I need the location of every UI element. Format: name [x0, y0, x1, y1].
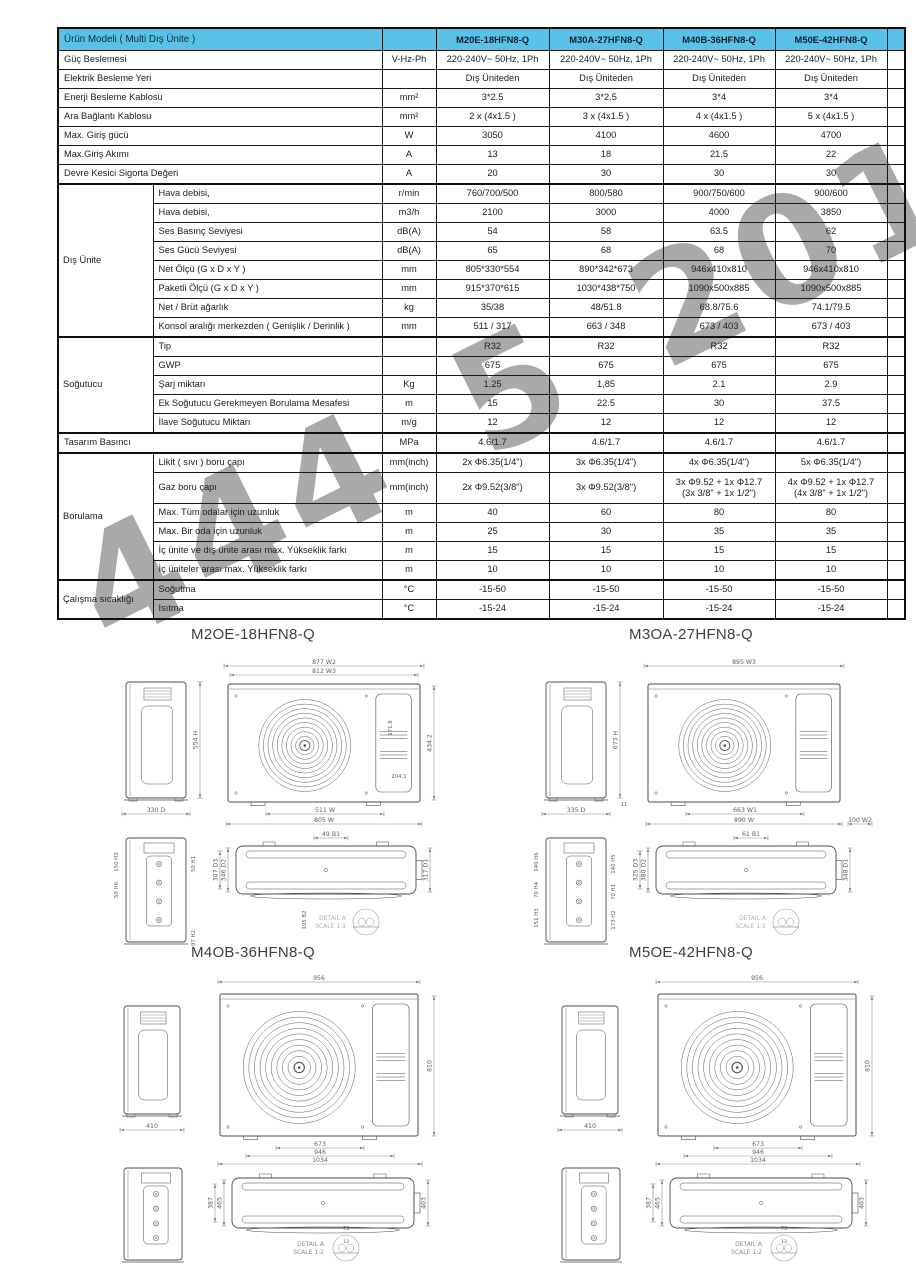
- unit-cell: [382, 70, 436, 89]
- edge-strip-cell: [887, 261, 905, 280]
- top-view: [232, 1174, 420, 1233]
- spec-cell: -15-50: [549, 580, 663, 600]
- spec-row: Ses Basınç SeviyesidB(A)545863.562: [58, 223, 905, 242]
- spec-row: Konsol aralığı merkezden ( Genişlik / De…: [58, 318, 905, 338]
- top-view: [236, 842, 422, 899]
- side-view: [122, 1006, 182, 1117]
- spec-row: Gaz boru çapımm(inch)2x Φ9.52(3/8")3x Φ9…: [58, 473, 905, 504]
- spec-cell: 675: [436, 357, 549, 376]
- row-label: İç üniteler arası max. Yükseklik farkı: [153, 561, 382, 581]
- technical-drawing: 4109568106739461034465387403DETAIL ASCAL…: [108, 964, 484, 1264]
- spec-cell: 675: [775, 357, 887, 376]
- spec-cell: 890*342*673: [549, 261, 663, 280]
- fan-grille: [679, 700, 771, 792]
- dimension-label: 1034: [312, 1157, 328, 1164]
- row-label: Likit ( sıvı ) boru çapı: [153, 453, 382, 473]
- spec-cell: 2x Φ6.35(1/4"): [436, 453, 549, 473]
- model-header: M40B-36HFN8-Q: [663, 28, 775, 51]
- detail-a-view: [771, 1235, 797, 1261]
- spec-cell: 3050: [436, 127, 549, 146]
- dimension-label: 61 B1: [742, 831, 760, 838]
- spec-cell: 18: [549, 146, 663, 165]
- spec-cell: 60: [549, 504, 663, 523]
- dimension-label: 380 D2: [641, 859, 648, 882]
- dimension-label: 70 H4: [534, 881, 540, 898]
- unit-cell: MPa: [382, 433, 436, 453]
- spec-cell: R32: [549, 337, 663, 357]
- spec-cell: 4.6/1.7: [663, 433, 775, 453]
- spec-cell: 48/51.8: [549, 299, 663, 318]
- spec-cell: 2.1: [663, 376, 775, 395]
- fan-grille: [243, 1012, 355, 1124]
- spec-row: SoğutucuTipR32R32R32R32: [58, 337, 905, 357]
- dimension-label: 325 D3: [633, 859, 640, 882]
- dimension-label: 554 H: [193, 730, 200, 749]
- row-label: Hava debisi,: [153, 184, 382, 204]
- spec-row: Paketli Ölçü (G x D x Y )mm915*370*61510…: [58, 280, 905, 299]
- row-label: Max.Giriş Akımı: [58, 146, 382, 165]
- spec-row: Elektrik Besleme YeriDış ÜnitedenDış Üni…: [58, 70, 905, 89]
- spec-cell: 58: [549, 223, 663, 242]
- row-label: Max. Bir oda için uzunluk: [153, 523, 382, 542]
- edge-strip-cell: [887, 504, 905, 523]
- spec-cell: -15-24: [549, 600, 663, 620]
- spec-cell: -15-50: [436, 580, 549, 600]
- spec-cell: R32: [436, 337, 549, 357]
- spec-cell: 675: [663, 357, 775, 376]
- group-label: Çalışma sıcaklığı: [58, 580, 153, 619]
- spec-cell: 3x Φ9.52 + 1x Φ12.7 (3x 3/8" + 1x 1/2"): [663, 473, 775, 504]
- spec-cell: 10: [549, 561, 663, 581]
- edge-strip-cell: [887, 146, 905, 165]
- group-label: Borulama: [58, 453, 153, 580]
- unit-cell: m: [382, 523, 436, 542]
- spec-row: Devre Kesici Sigorta DeğeriA20303030: [58, 165, 905, 185]
- spec-cell: 35: [775, 523, 887, 542]
- row-label: Paketli Ölçü (G x D x Y ): [153, 280, 382, 299]
- spec-cell: 13: [436, 146, 549, 165]
- spec-cell: 1.25: [436, 376, 549, 395]
- spec-cell: 3x Φ9.52(3/8"): [549, 473, 663, 504]
- technical-drawing: 673 H335 D11895 W3663 W1890 W100 W2140 H…: [528, 646, 904, 946]
- dimension-label: 100 W2: [848, 817, 872, 824]
- spec-cell: 15: [436, 542, 549, 561]
- unit-cell: W: [382, 127, 436, 146]
- row-label: Ses Basınç Seviyesi: [153, 223, 382, 242]
- dimension-label: 49 B1: [322, 831, 340, 838]
- side-view: [124, 682, 188, 801]
- spec-cell: 3*4: [663, 89, 775, 108]
- spec-cell: 35/38: [436, 299, 549, 318]
- spec-cell: R32: [775, 337, 887, 357]
- dimension-label: 11: [621, 802, 628, 808]
- unit-cell: °C: [382, 580, 436, 600]
- top-view: [656, 842, 842, 899]
- spec-cell: 65: [436, 242, 549, 261]
- edge-strip-cell: [887, 414, 905, 434]
- spec-cell: 900/600: [775, 184, 887, 204]
- spec-cell: 4x Φ6.35(1/4"): [663, 453, 775, 473]
- dimension-label: 673: [752, 1141, 764, 1148]
- edge-strip-cell: [887, 395, 905, 414]
- edge-strip-cell: [887, 376, 905, 395]
- dimension-label: 812 W3: [312, 668, 336, 675]
- spec-cell: Dış Üniteden: [663, 70, 775, 89]
- dimension-label: 673: [314, 1141, 326, 1148]
- front-view: [228, 684, 420, 806]
- dimension-label: DETAIL A: [319, 915, 347, 922]
- dimension-label: 70 H1: [611, 884, 617, 900]
- spec-cell: 21.5: [663, 146, 775, 165]
- unit-cell: m: [382, 561, 436, 581]
- row-label: Devre Kesici Sigorta Değeri: [58, 165, 382, 185]
- dimension-label: DETAIL A: [739, 915, 767, 922]
- dimension-label: 140 H6: [534, 852, 540, 872]
- spec-row: Tasarım BasıncıMPa4.6/1.74.6/1.74.6/1.74…: [58, 433, 905, 453]
- spec-cell: 80: [775, 504, 887, 523]
- drawing-title: M3OA-27HFN8-Q: [586, 626, 796, 643]
- spec-cell: 30: [663, 165, 775, 185]
- unit-cell: V-Hz-Ph: [382, 51, 436, 70]
- technical-drawing: 4109568106739461034465387403DETAIL ASCAL…: [546, 964, 916, 1264]
- spec-cell: 3000: [549, 204, 663, 223]
- spec-row: İç ünite ve dış ünite arası max. Yüksekl…: [58, 542, 905, 561]
- spec-cell: 220-240V~ 50Hz, 1Ph: [436, 51, 549, 70]
- dimension-label: 348 D1: [843, 859, 850, 882]
- model-header: M20E-18HFN8-Q: [436, 28, 549, 51]
- spec-cell: 35: [663, 523, 775, 542]
- spec-cell: 2100: [436, 204, 549, 223]
- dimension-label: 511 W: [315, 807, 335, 814]
- side-view: [544, 682, 608, 801]
- unit-cell: mm(inch): [382, 453, 436, 473]
- dimension-label: 410: [584, 1123, 596, 1130]
- spec-cell: 20: [436, 165, 549, 185]
- fan-grille: [259, 700, 351, 792]
- spec-cell: 37.5: [775, 395, 887, 414]
- dimension-label: 346 D2: [221, 859, 228, 882]
- spec-row: Ek Soğutucu Gerekmeyen Borulama Mesafesi…: [58, 395, 905, 414]
- edge-strip-cell: [887, 318, 905, 338]
- spec-cell: 675: [549, 357, 663, 376]
- spec-row: Net / Brüt ağarlıkkg35/3848/51.868.8/75.…: [58, 299, 905, 318]
- spec-cell: 4000: [663, 204, 775, 223]
- spec-cell: 30: [663, 395, 775, 414]
- side-view: [560, 1006, 620, 1117]
- unit-cell: A: [382, 165, 436, 185]
- unit-cell: Kg: [382, 376, 436, 395]
- spec-cell: 4700: [775, 127, 887, 146]
- dimension-label: 387: [208, 1197, 215, 1209]
- spec-cell: 1090x500x885: [775, 280, 887, 299]
- dimension-label: 403: [859, 1197, 866, 1209]
- row-label: Şarj miktarı: [153, 376, 382, 395]
- spec-cell: 3*2.5: [436, 89, 549, 108]
- drawing-panel: M3OA-27HFN8-Q673 H335 D11895 W3663 W1890…: [528, 626, 904, 948]
- spec-table: Ürün Modeli ( Multi Dış Ünite )M20E-18HF…: [57, 27, 906, 620]
- spec-row: Hava debisi,m3/h2100300040003850: [58, 204, 905, 223]
- dimension-label: DETAIL A: [297, 1241, 325, 1248]
- spec-cell: 2x Φ9.52(3/8"): [436, 473, 549, 504]
- dimension-label: 330 D: [147, 807, 166, 814]
- unit-cell: mm²: [382, 108, 436, 127]
- spec-cell: 760/700/500: [436, 184, 549, 204]
- row-label: Ses Gücü Seviyesi: [153, 242, 382, 261]
- dimension-label: 140 H5: [611, 854, 617, 874]
- spec-cell: 15: [436, 395, 549, 414]
- spec-cell: 5 x (4x1.5 ): [775, 108, 887, 127]
- group-label: Dış Ünite: [58, 184, 153, 337]
- edge-strip-cell: [887, 299, 905, 318]
- dimension-label: 13: [343, 1239, 349, 1245]
- spec-row: Max. Bir oda için uzunlukm25303535: [58, 523, 905, 542]
- spec-cell: 68.8/75.6: [663, 299, 775, 318]
- spec-row: GWP675675675675: [58, 357, 905, 376]
- unit-cell: mm(inch): [382, 473, 436, 504]
- row-label: Net / Brüt ağarlık: [153, 299, 382, 318]
- dimension-label: DETAIL A: [735, 1241, 763, 1248]
- spec-cell: 946x410x810: [775, 261, 887, 280]
- dimension-label: 465: [217, 1197, 224, 1209]
- edge-strip-cell: [887, 51, 905, 70]
- unit-cell: m: [382, 542, 436, 561]
- spec-cell: 3850: [775, 204, 887, 223]
- spec-row: Dış ÜniteHava debisi,r/min760/700/500800…: [58, 184, 905, 204]
- dimension-label: 173 H2: [611, 910, 617, 930]
- dimension-label: 50 H6: [114, 881, 120, 898]
- row-label: Konsol aralığı merkezden ( Genişlik / De…: [153, 318, 382, 338]
- spec-cell: 10: [775, 561, 887, 581]
- edge-strip-cell: [887, 542, 905, 561]
- row-label: Net Ölçü (G x D x Y ): [153, 261, 382, 280]
- edge-strip-cell: [887, 523, 905, 542]
- spec-cell: 2 x (4x1.5 ): [436, 108, 549, 127]
- spec-cell: 74.1/79.5: [775, 299, 887, 318]
- unit-cell: m3/h: [382, 204, 436, 223]
- row-label: İç ünite ve dış ünite arası max. Yüksekl…: [153, 542, 382, 561]
- spec-cell: 800/580: [549, 184, 663, 204]
- spec-cell: Dış Üniteden: [775, 70, 887, 89]
- edge-strip-cell: [887, 433, 905, 453]
- edge-strip-cell: [887, 357, 905, 376]
- spec-cell: 4 x (4x1.5 ): [663, 108, 775, 127]
- edge-strip-cell: [887, 242, 905, 261]
- edge-strip-cell: [887, 280, 905, 299]
- spec-cell: -15-24: [436, 600, 549, 620]
- table-header-row: Ürün Modeli ( Multi Dış Ünite )M20E-18HF…: [58, 28, 905, 51]
- back-view: [544, 838, 608, 944]
- edge-strip-cell: [887, 580, 905, 600]
- spec-cell: 663 / 348: [549, 318, 663, 338]
- edge-strip-cell: [887, 165, 905, 185]
- spec-cell: 70: [775, 242, 887, 261]
- row-label: Güç Beslemesi: [58, 51, 382, 70]
- edge-strip-cell: [887, 108, 905, 127]
- spec-cell: 15: [775, 542, 887, 561]
- top-view: [670, 1174, 858, 1233]
- spec-cell: 15: [549, 542, 663, 561]
- spec-cell: 1090x500x885: [663, 280, 775, 299]
- unit-cell: [382, 337, 436, 357]
- spec-cell: 25: [436, 523, 549, 542]
- spec-cell: 220-240V~ 50Hz, 1Ph: [663, 51, 775, 70]
- spec-cell: 5x Φ6.35(1/4"): [775, 453, 887, 473]
- spec-cell: 40: [436, 504, 549, 523]
- spec-cell: 4.6/1.7: [549, 433, 663, 453]
- dimension-label: SCALE 1:1: [315, 923, 346, 930]
- spec-row: Max. Tüm odalar için uzunlukm40608080: [58, 504, 905, 523]
- spec-cell: 673 / 403: [663, 318, 775, 338]
- dimension-label: 105 B2: [302, 910, 308, 929]
- edge-strip-cell: [887, 70, 905, 89]
- spec-cell: 68: [663, 242, 775, 261]
- dimension-label: 956: [313, 975, 325, 982]
- detail-a-view: [353, 909, 379, 935]
- back-view: [560, 1168, 622, 1262]
- spec-row: BorulamaLikit ( sıvı ) boru çapımm(inch)…: [58, 453, 905, 473]
- row-label: Tasarım Basıncı: [58, 433, 382, 453]
- dimension-label: 151 H3: [534, 908, 540, 928]
- spec-row: Şarj miktarıKg1.251,852.12.9: [58, 376, 905, 395]
- spec-cell: 10: [663, 561, 775, 581]
- edge-strip-cell: [887, 28, 905, 51]
- spec-cell: 4100: [549, 127, 663, 146]
- row-label: Max. Tüm odalar için uzunluk: [153, 504, 382, 523]
- spec-cell: 946x410x810: [663, 261, 775, 280]
- drawing-panel: M5OE-42HFN8-Q410956810673946103446538740…: [546, 944, 916, 1266]
- spec-row: Enerji Besleme Kablosumm²3*2.53*2.53*43*…: [58, 89, 905, 108]
- spec-cell: 12: [775, 414, 887, 434]
- model-header: M30A-27HFN8-Q: [549, 28, 663, 51]
- spec-row: Isıtma°C-15-24-15-24-15-24-15-24: [58, 600, 905, 620]
- spec-cell: 3*2.5: [549, 89, 663, 108]
- dimension-label: 877 W2: [312, 659, 336, 666]
- spec-cell: 30: [775, 165, 887, 185]
- spec-cell: 22.5: [549, 395, 663, 414]
- unit-cell: dB(A): [382, 242, 436, 261]
- dimension-label: 410: [146, 1123, 158, 1130]
- dimension-label: 946: [314, 1149, 326, 1156]
- edge-strip-cell: [887, 184, 905, 204]
- row-label: Ek Soğutucu Gerekmeyen Borulama Mesafesi: [153, 395, 382, 414]
- fan-grille: [681, 1012, 793, 1124]
- spec-row: Ses Gücü SeviyesidB(A)65686870: [58, 242, 905, 261]
- spec-cell: 915*370*615: [436, 280, 549, 299]
- spec-cell: 4x Φ9.52 + 1x Φ12.7 (4x 3/8" + 1x 1/2"): [775, 473, 887, 504]
- spec-cell: 4600: [663, 127, 775, 146]
- row-label: GWP: [153, 357, 382, 376]
- row-label: Gaz boru çapı: [153, 473, 382, 504]
- spec-row: Max.Giriş AkımıA131821.522: [58, 146, 905, 165]
- spec-row: Ara Bağlantı Kablosumm²2 x (4x1.5 )3 x (…: [58, 108, 905, 127]
- spec-cell: 12: [436, 414, 549, 434]
- drawing-panel: M4OB-36HFN8-Q410956810673946103446538740…: [108, 944, 484, 1266]
- unit-cell: m: [382, 395, 436, 414]
- spec-cell: -15-50: [775, 580, 887, 600]
- drawing-title: M5OE-42HFN8-Q: [586, 944, 796, 961]
- dimension-label: 150 H3: [114, 852, 120, 872]
- detail-a-view: [333, 1235, 359, 1261]
- spec-table-section: Ürün Modeli ( Multi Dış Ünite )M20E-18HF…: [57, 27, 906, 620]
- dimension-label: 387: [646, 1197, 653, 1209]
- dimension-label: 890 W: [734, 817, 754, 824]
- drawing-panel: M2OE-18HFN8-Q554 H330 D877 W2812 W3511 W…: [108, 626, 484, 948]
- dimension-label: 307 D3: [213, 859, 220, 882]
- spec-cell: 68: [549, 242, 663, 261]
- table-title: Ürün Modeli ( Multi Dış Ünite ): [58, 28, 382, 51]
- spec-row: Net Ölçü (G x D x Y )mm805*330*554890*34…: [58, 261, 905, 280]
- unit-cell: dB(A): [382, 223, 436, 242]
- edge-strip-cell: [887, 127, 905, 146]
- spec-row: Max. Giriş gücüW3050410046004700: [58, 127, 905, 146]
- spec-cell: 900/750/600: [663, 184, 775, 204]
- unit-cell: °C: [382, 600, 436, 620]
- dimension-label: 317 D1: [423, 859, 430, 882]
- edge-strip-cell: [887, 337, 905, 357]
- spec-cell: 3 x (4x1.5 ): [549, 108, 663, 127]
- technical-drawing: 554 H330 D877 W2812 W3511 W805 W434.2171…: [108, 646, 484, 946]
- spec-cell: 22: [775, 146, 887, 165]
- spec-cell: 4.6/1.7: [436, 433, 549, 453]
- spec-row: Güç BeslemesiV-Hz-Ph220-240V~ 50Hz, 1Ph2…: [58, 51, 905, 70]
- detail-a-view: [773, 909, 799, 935]
- dimension-label: 810: [427, 1060, 434, 1072]
- spec-cell: 805*330*554: [436, 261, 549, 280]
- dimension-label: 403: [421, 1197, 428, 1209]
- dimension-label: 805 W: [314, 817, 334, 824]
- unit-cell: [382, 357, 436, 376]
- dimension-label: 810: [865, 1060, 872, 1072]
- spec-row: İç üniteler arası max. Yükseklik farkım1…: [58, 561, 905, 581]
- spec-cell: 62: [775, 223, 887, 242]
- row-label: Max. Giriş gücü: [58, 127, 382, 146]
- model-header: M50E-42HFN8-Q: [775, 28, 887, 51]
- dimension-label: 1034: [750, 1157, 766, 1164]
- drawing-title: M4OB-36HFN8-Q: [148, 944, 358, 961]
- unit-cell: r/min: [382, 184, 436, 204]
- dimension-label: 434.2: [427, 734, 434, 752]
- row-label: İlave Soğutucu Miktarı: [153, 414, 382, 434]
- spec-cell: 12: [663, 414, 775, 434]
- unit-cell: mm: [382, 280, 436, 299]
- dimension-label: SCALE 1:2: [293, 1249, 324, 1256]
- dimension-label: 663 W1: [733, 807, 757, 814]
- back-view: [122, 1168, 184, 1262]
- dimension-label: 335 D: [567, 807, 586, 814]
- edge-strip-cell: [887, 473, 905, 504]
- edge-strip-cell: [887, 223, 905, 242]
- row-label: Ara Bağlantı Kablosu: [58, 108, 382, 127]
- unit-cell: m/g: [382, 414, 436, 434]
- spec-cell: 30: [549, 165, 663, 185]
- spec-cell: 15: [663, 542, 775, 561]
- drawing-title: M2OE-18HFN8-Q: [148, 626, 358, 643]
- edge-strip-cell: [887, 204, 905, 223]
- dimension-label: 204.1: [391, 774, 406, 780]
- front-view: [648, 684, 840, 806]
- spec-cell: R32: [663, 337, 775, 357]
- spec-cell: 1030*438*750: [549, 280, 663, 299]
- row-label: Tip: [153, 337, 382, 357]
- edge-strip-cell: [887, 600, 905, 620]
- spec-cell: Dış Üniteden: [549, 70, 663, 89]
- dimension-label: 946: [752, 1149, 764, 1156]
- unit-cell: mm: [382, 318, 436, 338]
- dimension-label: 895 W3: [732, 659, 756, 666]
- dimension-label: SCALE 1:1: [735, 923, 766, 930]
- spec-cell: 220-240V~ 50Hz, 1Ph: [549, 51, 663, 70]
- spec-row: İlave Soğutucu Miktarım/g12121212: [58, 414, 905, 434]
